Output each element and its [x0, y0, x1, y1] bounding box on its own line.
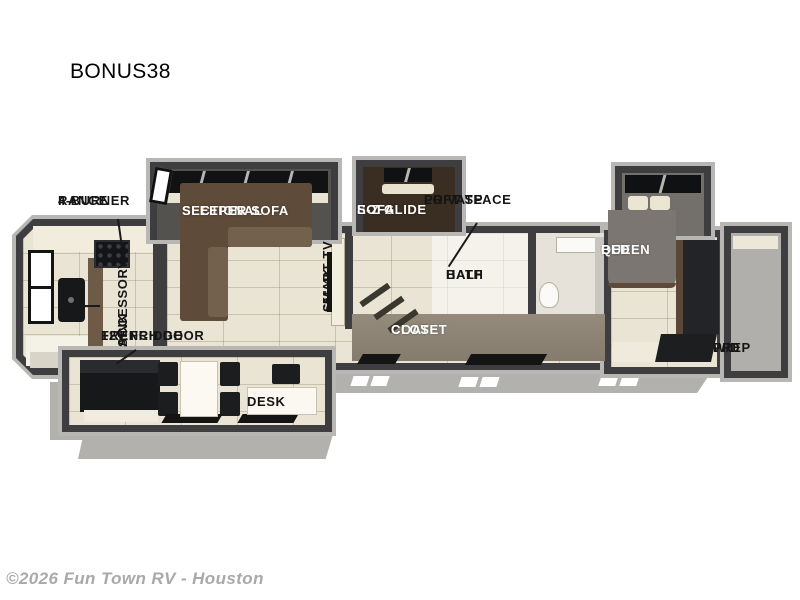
- sofa-cushion: [208, 247, 228, 317]
- leader-sink: [84, 305, 100, 307]
- fridge-base: [84, 410, 158, 422]
- dinette-chair: [220, 362, 240, 386]
- bath-vanity: [556, 237, 600, 253]
- floor-mat: [237, 414, 298, 423]
- sink-drain: [68, 297, 74, 303]
- dinette-chair: [158, 392, 178, 416]
- kitchen-window: [28, 250, 54, 324]
- bath-toilet: [539, 282, 559, 308]
- dinette-table: [180, 361, 218, 417]
- step-marker: [370, 376, 389, 386]
- wardrobe: [683, 240, 719, 334]
- entry-door-mat: [357, 354, 401, 364]
- dinette-chair: [158, 362, 178, 386]
- wardrobe-trim: [676, 240, 683, 334]
- bedroom-dresser: [655, 334, 717, 362]
- accessory-sink-basin: [58, 278, 85, 322]
- step-marker: [350, 376, 369, 386]
- sofa-cushion: [228, 227, 312, 247]
- bed-foot-trim: [608, 283, 676, 288]
- step-marker: [598, 375, 619, 386]
- fridge: [80, 360, 160, 412]
- step-marker: [479, 377, 499, 387]
- window-mullion: [31, 286, 51, 289]
- slideout-windows: [625, 175, 701, 193]
- floorplan-image: BONUS38: [0, 0, 800, 600]
- desk-chair: [272, 364, 300, 384]
- kitchen-counter: [33, 226, 153, 252]
- wd-shelf: [733, 236, 778, 249]
- slideout-window: [384, 168, 432, 182]
- step-marker: [458, 377, 478, 387]
- watermark: ©2026 Fun Town RV - Houston: [6, 569, 264, 589]
- window-mullion: [659, 175, 667, 193]
- plan-title: BONUS38: [70, 60, 171, 84]
- entry-door-mat: [465, 354, 547, 365]
- step-marker: [619, 375, 640, 386]
- window-mullion: [404, 168, 411, 182]
- bed-pillow: [650, 196, 670, 210]
- bed-pillow: [628, 196, 648, 210]
- dinette-chair: [220, 392, 240, 416]
